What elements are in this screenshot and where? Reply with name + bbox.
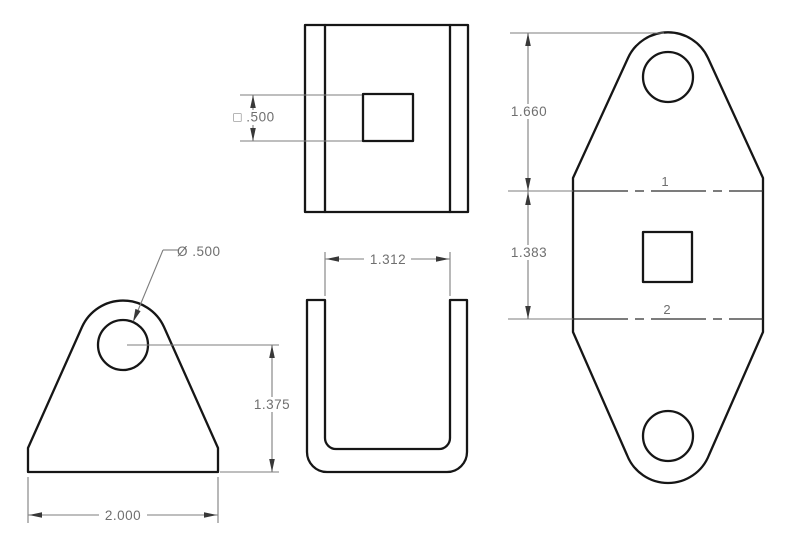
bend-line-1-label: 1 <box>661 174 668 189</box>
dim-flat-middle-label: 1.383 <box>511 245 547 260</box>
drawing-sheet: □ .500 Ø .500 1.375 2.000 <box>0 0 800 547</box>
flat-pattern-square-hole <box>643 232 692 282</box>
engineering-drawing-canvas: □ .500 Ø .500 1.375 2.000 <box>0 0 800 547</box>
dim-flat-middle: 1.383 <box>506 191 573 319</box>
dim-channel-width-label: 1.312 <box>370 252 406 267</box>
arrowhead-right <box>436 256 449 262</box>
flat-pattern-top-hole <box>643 52 693 102</box>
top-view-square-hole <box>363 94 413 141</box>
flat-pattern-view: 1 2 <box>573 32 763 483</box>
arrowhead-up <box>250 95 256 108</box>
channel-view <box>307 300 467 472</box>
arrowhead-right <box>204 512 217 518</box>
arrowhead-down <box>269 459 275 472</box>
arrowhead-up <box>525 33 531 46</box>
arrowhead-down <box>250 128 256 141</box>
dim-base-width: 2.000 <box>28 477 218 523</box>
arrowhead-down <box>525 178 531 191</box>
dim-hole-height-label: 1.375 <box>254 397 290 412</box>
channel-outline <box>307 300 467 472</box>
flat-pattern-bottom-hole <box>643 411 693 461</box>
top-view <box>305 25 468 212</box>
arrowhead-up <box>525 192 531 205</box>
arrowhead-up <box>269 345 275 358</box>
arrowhead-left <box>326 256 339 262</box>
front-view <box>28 301 218 472</box>
arrowhead-left <box>29 512 42 518</box>
dim-base-width-label: 2.000 <box>105 508 141 523</box>
dim-flat-upper-label: 1.660 <box>511 104 547 119</box>
dim-hole-diameter-label: Ø .500 <box>177 244 221 259</box>
dim-channel-width: 1.312 <box>325 252 450 296</box>
arrowhead-down <box>525 306 531 319</box>
bend-line-2-label: 2 <box>663 302 670 317</box>
dim-square-hole-label: □ .500 <box>233 110 274 125</box>
